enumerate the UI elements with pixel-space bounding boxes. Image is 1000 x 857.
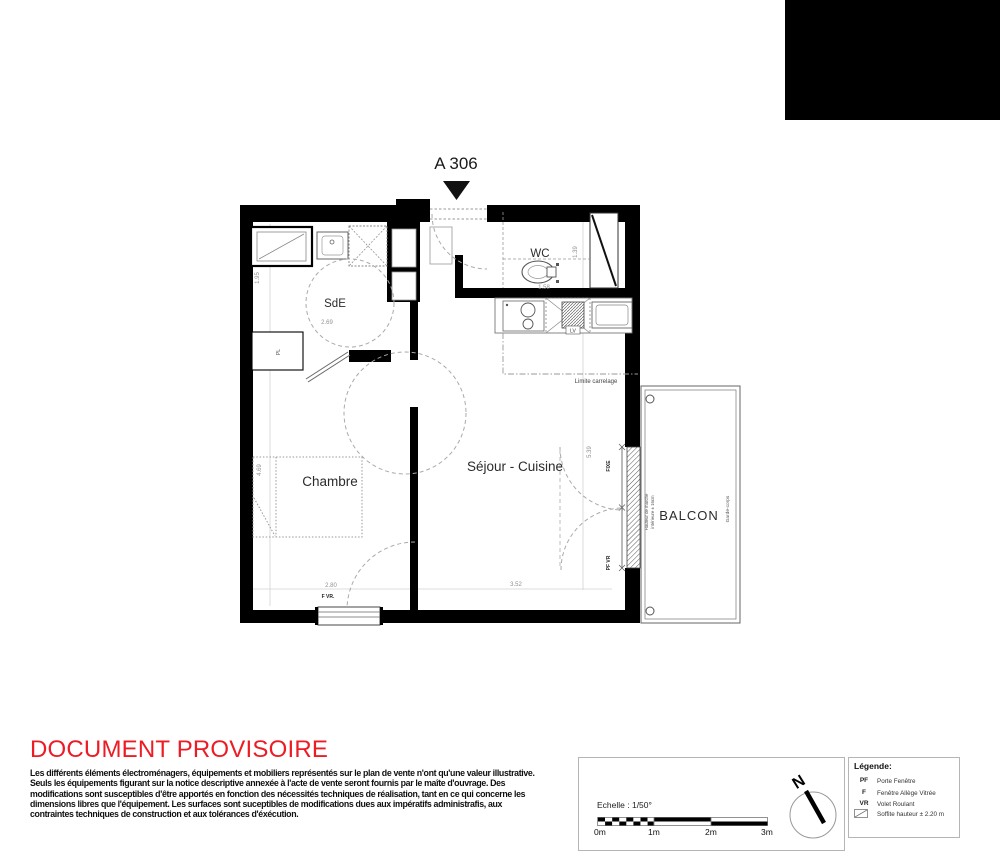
scale-label: Echelle : 1/50°: [597, 800, 652, 810]
scale-tick: 2m: [705, 827, 717, 837]
washer-slot: [349, 226, 387, 266]
balcony-door-swings: [560, 447, 623, 570]
legend-abbr-f: F: [853, 789, 875, 796]
limite-carrelage: Limite carrelage: [503, 333, 638, 385]
legend-panel: Légende: PF Porte Fenêtre F Fenêtre Allè…: [848, 757, 960, 838]
dishwasher-label: LV: [570, 329, 576, 335]
bed: [253, 457, 362, 537]
wall-niches: [392, 227, 452, 300]
kitchen-sink: [592, 302, 632, 328]
dim-chambre-width: 2.80: [325, 583, 337, 589]
north-arrow: N: [787, 761, 842, 843]
label-f-vr: F VR.: [322, 594, 335, 600]
legend-abbr-vr: VR: [853, 800, 875, 807]
unit-label: A 306: [434, 154, 478, 173]
label-pf-vr: PF VR: [606, 555, 612, 570]
entrance-arrow-icon: [443, 181, 470, 200]
legend-label-vr: Volet Roulant: [877, 801, 914, 808]
north-label: N: [790, 772, 809, 793]
legend-label-pf: Porte Fenêtre: [877, 778, 916, 785]
legend-abbr-pf: PF: [853, 777, 875, 784]
dishwasher: [562, 302, 584, 328]
scale-tick: 3m: [761, 827, 773, 837]
room-label-chambre: Chambre: [302, 474, 358, 489]
disclaimer-text: Les différents éléments électroménagers,…: [30, 768, 610, 819]
placard: PL: [252, 332, 303, 370]
shower-fixture: [251, 227, 312, 266]
floor-plan: A 306: [0, 0, 1000, 857]
sde-turning-circle: [306, 259, 394, 347]
legend-label-f: Fenêtre Allège Vitrée: [877, 790, 936, 797]
disclaimer-line: Seuls les équipements figurant sur la no…: [30, 778, 610, 788]
scale-panel: Echelle : 1/50° 0m 1m 2m 3m N: [578, 757, 845, 851]
dim-sde-width: 2.69: [321, 320, 333, 326]
note-garde-corps: Garde-corps: [725, 495, 731, 522]
room-label-sejour: Séjour - Cuisine: [467, 459, 563, 474]
dimension-guides: [253, 222, 612, 606]
unit-entrance-marker: A 306: [434, 154, 478, 200]
chambre-window: [315, 607, 383, 625]
disclaimer-line: modifications sont susceptibles d'être a…: [30, 789, 610, 799]
joinery-labels: F VR. FIXE PF VR: [322, 460, 612, 600]
dim-sejour-width: 3.52: [510, 582, 522, 588]
scale-bar: [597, 817, 769, 826]
legend-title: Légende:: [854, 761, 892, 771]
room-label-wc: WC: [530, 248, 549, 260]
note-hauteur-marche-1: Hauteur de marche: [644, 493, 649, 530]
balcony-glazed-door: [619, 444, 640, 571]
legend-label-soffit: Soffite hauteur ± 2.20 m: [877, 811, 944, 818]
room-label-sde: SdE: [324, 298, 346, 310]
limite-carrelage-label: Limite carrelage: [575, 379, 618, 385]
disclaimer-line: contraintes techniques de construction e…: [30, 809, 610, 819]
room-label-balcon: BALCON: [659, 508, 718, 523]
toilet-fixture: [522, 261, 559, 283]
label-fixe: FIXE: [606, 460, 612, 472]
dim-sejour-height: 5.39: [587, 446, 593, 458]
note-hauteur-marche-2: intérieure ± 16cm: [650, 495, 655, 529]
sde-door-leaf: [306, 352, 350, 382]
soffit-symbol-icon: [854, 809, 869, 819]
dim-sde-height: 1.95: [255, 272, 261, 284]
sejour-turning-circle: [344, 352, 466, 474]
placard-label: PL: [276, 349, 282, 355]
disclaimer-line: Les différents éléments électroménagers,…: [30, 768, 610, 778]
disclaimer-line: dimensions libres que l'équipement. Les …: [30, 799, 610, 809]
kitchen-counter: LV: [495, 298, 632, 335]
washbasin-fixture: [317, 232, 348, 259]
dim-wc-height: 1.39: [573, 246, 579, 258]
dim-wc-width: 1.58: [538, 285, 550, 291]
dim-chambre-height: 4.69: [257, 464, 263, 476]
provisional-watermark: DOCUMENT PROVISOIRE: [30, 736, 328, 764]
scale-tick: 0m: [594, 827, 606, 837]
scale-tick: 1m: [648, 827, 660, 837]
chambre-door-swing: [347, 542, 415, 610]
